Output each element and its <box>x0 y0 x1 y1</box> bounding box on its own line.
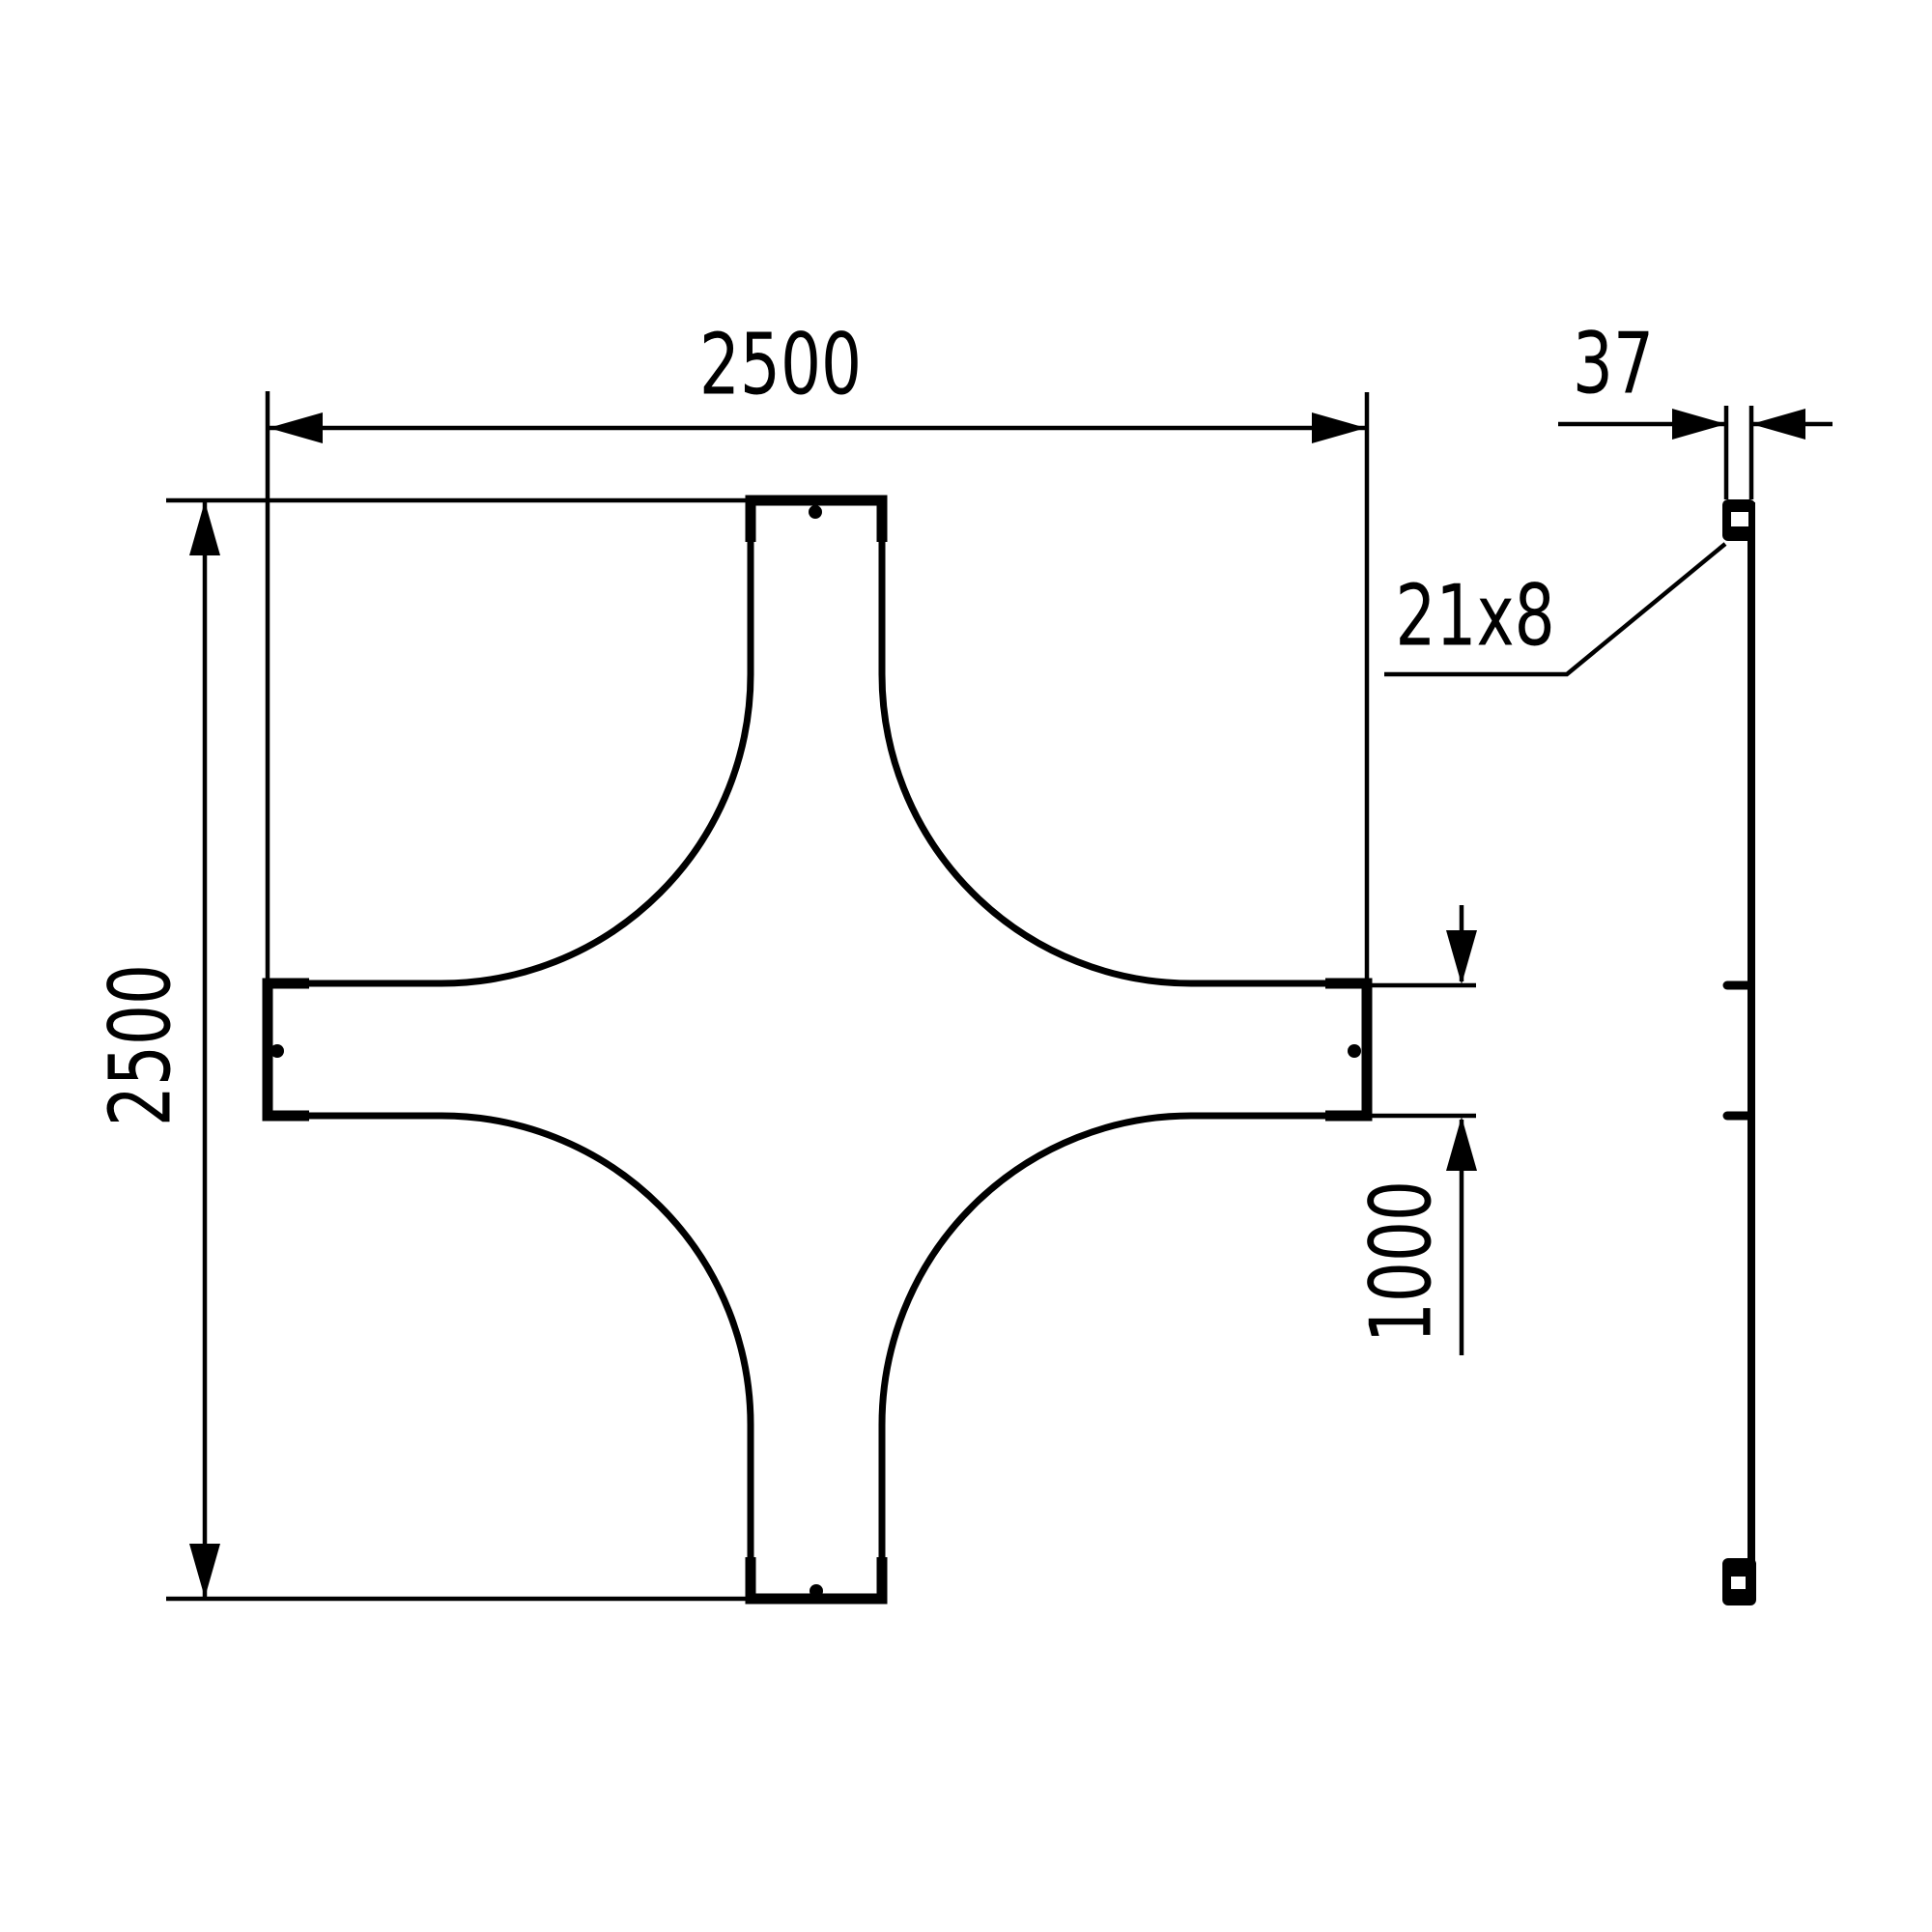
dimension-profile-depth <box>1558 406 1833 499</box>
technical-drawing-page: 2500 2500 37 21x8 1000 <box>0 0 1932 1932</box>
dimension-overall-width <box>268 391 1367 985</box>
dimension-label-overall-width: 2500 <box>699 324 862 408</box>
arrowhead-bottom <box>189 1544 220 1598</box>
plan-view <box>268 500 1367 1599</box>
drawing-linework <box>0 0 1932 1932</box>
arrowhead-left <box>269 412 323 443</box>
hole-bottom-arm <box>810 1584 823 1598</box>
dimension-label-branch-width: 1000 <box>1360 1180 1444 1343</box>
dimension-label-slot-size: 21x8 <box>1395 575 1554 659</box>
arrowhead-top <box>189 501 220 555</box>
hole-top-arm <box>809 505 822 519</box>
arrowhead-right <box>1312 412 1366 443</box>
dimension-label-overall-height: 2500 <box>99 964 184 1126</box>
top-hook-slot <box>1731 512 1748 526</box>
side-profile-view <box>1722 499 1756 1605</box>
dimension-overall-height <box>166 500 751 1599</box>
bottom-hook-slot <box>1731 1577 1746 1589</box>
dimension-label-profile-depth: 37 <box>1573 323 1654 407</box>
cross-outline <box>268 500 1367 1599</box>
hole-right-arm <box>1348 1044 1361 1058</box>
arrowhead-left <box>1751 409 1805 440</box>
arrowhead-up <box>1446 1117 1477 1171</box>
arrowhead-right <box>1672 409 1726 440</box>
arrowhead-down <box>1446 930 1477 984</box>
hole-left-arm <box>270 1044 284 1058</box>
